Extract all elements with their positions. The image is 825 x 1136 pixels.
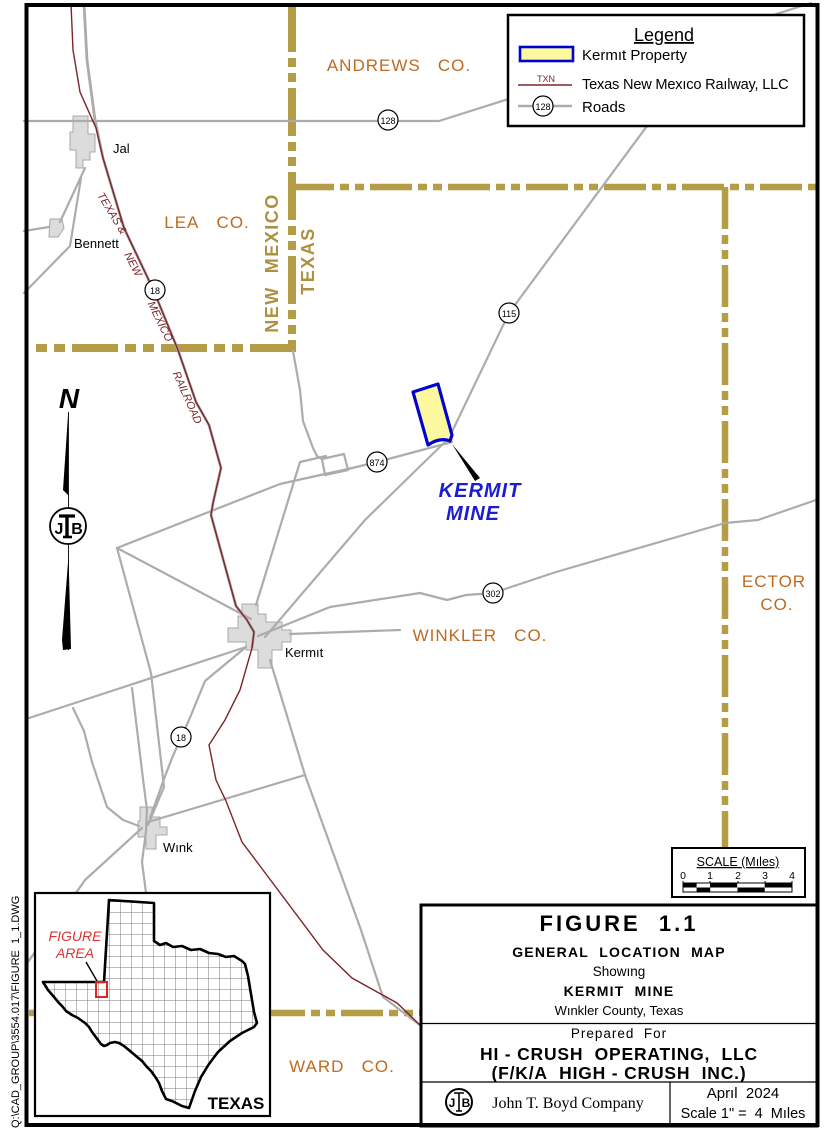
svg-text:TXN: TXN xyxy=(537,74,555,84)
svg-text:WARD CO.: WARD CO. xyxy=(289,1057,395,1076)
svg-text:Legend: Legend xyxy=(634,25,694,45)
svg-text:FIGURE 1.1: FIGURE 1.1 xyxy=(540,911,699,936)
svg-text:ANDREWS CO.: ANDREWS CO. xyxy=(327,56,471,75)
svg-text:NEW MEXICO: NEW MEXICO xyxy=(262,193,282,333)
svg-text:Prepared For: Prepared For xyxy=(571,1026,667,1041)
svg-text:18: 18 xyxy=(150,286,160,296)
svg-text:115: 115 xyxy=(502,309,516,319)
svg-text:4: 4 xyxy=(789,870,795,882)
svg-text:Wınkler County, Texas: Wınkler County, Texas xyxy=(555,1003,684,1018)
svg-text:Kermıt Property: Kermıt Property xyxy=(582,47,688,64)
svg-text:128: 128 xyxy=(535,102,550,112)
svg-text:KERMIT MINE: KERMIT MINE xyxy=(564,983,675,999)
svg-text:0: 0 xyxy=(680,870,686,882)
svg-text:SCALE (Mıles): SCALE (Mıles) xyxy=(697,855,780,869)
svg-text:B: B xyxy=(462,1096,471,1110)
svg-text:CO.: CO. xyxy=(760,595,793,614)
svg-text:Wınk: Wınk xyxy=(163,840,193,855)
svg-text:GENERAL LOCATION MAP: GENERAL LOCATION MAP xyxy=(512,944,726,960)
svg-text:302: 302 xyxy=(485,589,500,599)
svg-text:3: 3 xyxy=(762,870,768,882)
svg-text:2: 2 xyxy=(735,870,741,882)
svg-text:Texas New Mexıco Raılway, LLC: Texas New Mexıco Raılway, LLC xyxy=(582,77,788,93)
svg-text:Showıng: Showıng xyxy=(593,964,646,979)
svg-text:1: 1 xyxy=(707,870,713,882)
svg-text:KERMIT: KERMIT xyxy=(439,480,522,502)
svg-text:Roads: Roads xyxy=(582,99,625,116)
svg-text:MINE: MINE xyxy=(446,503,500,525)
svg-text:ECTOR: ECTOR xyxy=(742,572,806,591)
svg-text:Kermıt: Kermıt xyxy=(285,645,324,660)
svg-text:John T. Boyd Company: John T. Boyd Company xyxy=(492,1095,643,1112)
svg-text:Scale 1" = 4 Mıles: Scale 1" = 4 Mıles xyxy=(681,1106,806,1122)
svg-text:TEXAS: TEXAS xyxy=(298,227,318,295)
svg-text:AREA: AREA xyxy=(55,945,94,961)
svg-text:TEXAS: TEXAS xyxy=(208,1094,265,1113)
svg-text:J: J xyxy=(55,521,64,538)
svg-text:LEA CO.: LEA CO. xyxy=(164,213,250,232)
svg-text:Jal: Jal xyxy=(113,141,130,156)
svg-text:128: 128 xyxy=(380,116,395,126)
svg-text:18: 18 xyxy=(176,733,186,743)
svg-text:FIGURE: FIGURE xyxy=(49,928,103,944)
svg-text:WINKLER CO.: WINKLER CO. xyxy=(413,626,548,645)
svg-text:B: B xyxy=(71,521,83,538)
svg-text:N: N xyxy=(59,383,80,414)
svg-text:Q:\CAD_GROUP\3554.017\FIGURE: Q:\CAD_GROUP\3554.017\FIGURE 1_1.DWG xyxy=(10,896,22,1128)
svg-text:874: 874 xyxy=(369,458,384,468)
svg-text:Bennett: Bennett xyxy=(74,236,119,251)
svg-text:(F/K/A HIGH - CRUSH INC.): (F/K/A HIGH - CRUSH INC.) xyxy=(492,1063,747,1083)
svg-text:Aprıl 2024: Aprıl 2024 xyxy=(707,1085,780,1102)
svg-text:HI - CRUSH OPERATING, LLC: HI - CRUSH OPERATING, LLC xyxy=(480,1044,758,1064)
svg-text:J: J xyxy=(449,1096,456,1110)
